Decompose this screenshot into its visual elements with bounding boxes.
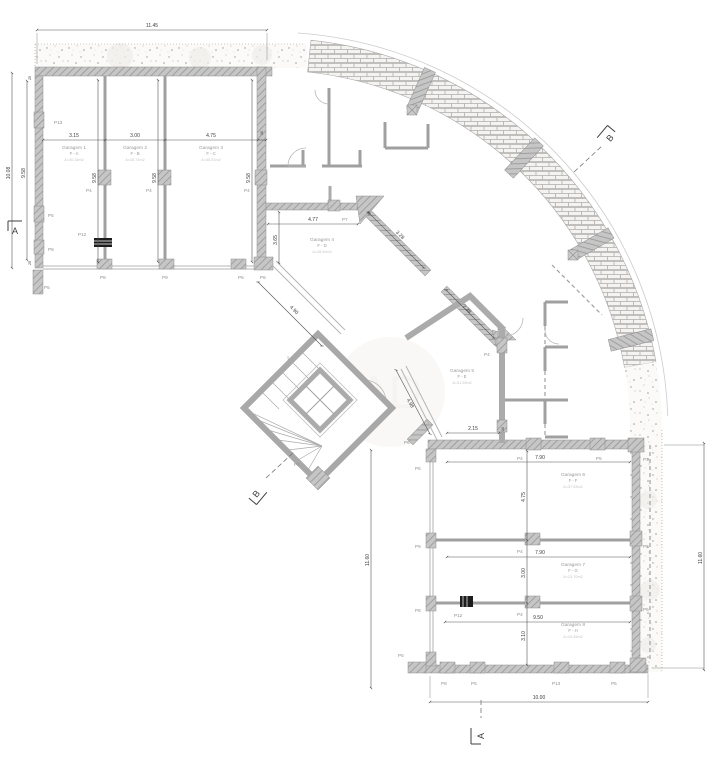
left-wing-corner-block [254, 257, 273, 270]
garage-label-6: Garagem 6 F - F A=37.53m2 [561, 472, 585, 489]
column-label: P5 [643, 544, 649, 549]
left-wing-left-wall [35, 76, 43, 268]
dim-g4-h: 3.65 [273, 235, 279, 245]
svg-text:A: A [12, 226, 18, 236]
column-label: P6 [404, 440, 410, 445]
section-marker-a-left: A [8, 221, 22, 236]
garage-label-7: Garagem 7 F - G A=23.70m2 [561, 562, 585, 579]
svg-text:A=30.18m2: A=30.18m2 [64, 158, 84, 162]
garage-label-4: Garagem 4 F - D A=28.40m2 [310, 237, 334, 254]
dim-g8-h: 3.10 [521, 631, 527, 641]
column-label: P3 [643, 457, 649, 462]
left-wing-top-wall [35, 67, 272, 76]
dim-g6-h: 4.75 [521, 492, 527, 502]
garage-label-5: Garagem 5 F - E A=31.25m2 [450, 368, 474, 385]
column-label: P13 [54, 120, 63, 125]
dim-right-height: 11.60 [698, 552, 704, 564]
svg-text:F - H: F - H [568, 628, 577, 633]
arc-end-stipple [625, 362, 663, 430]
column-label: P4 [244, 188, 250, 193]
column-label: P5 [398, 653, 404, 658]
column-label: P8 [415, 608, 421, 613]
column-label: P5 [611, 681, 617, 686]
column-label: P6 [643, 607, 649, 612]
column-label: P6 [260, 275, 266, 280]
svg-text:F - G: F - G [568, 568, 578, 573]
svg-text:B: B [251, 488, 263, 499]
panel-left [94, 238, 112, 247]
column-label: P8 [441, 681, 447, 686]
dim-rw-entry: 2.15 [468, 426, 478, 432]
section-b-bottom-dash [266, 452, 294, 478]
dim-g3-w: 4.75 [206, 133, 216, 139]
dim-g3-end: 30 [260, 131, 264, 135]
column-label: P12 [454, 613, 463, 618]
section-marker-a-bottom: A [471, 728, 486, 744]
column-label: P8 [100, 275, 106, 280]
svg-text:F - E: F - E [457, 374, 466, 379]
dim-rw-entry-small: 30 [501, 427, 505, 431]
garage-front-lines [43, 261, 442, 665]
dim-wall25-bottom: 25 [28, 261, 32, 265]
dim-g4-w: 4.77 [308, 217, 318, 223]
svg-text:F - C: F - C [206, 151, 215, 156]
svg-text:A=45.51m2: A=45.51m2 [201, 158, 221, 162]
dim-left-inner: 9.58 [21, 168, 27, 178]
dim-g7-h: 3.00 [521, 568, 527, 578]
column-label: P5 [471, 681, 477, 686]
garage-separators [105, 76, 632, 603]
dim-g2-w: 3.00 [130, 133, 140, 139]
panel-right [460, 596, 473, 607]
dim-mid-height: 11.60 [365, 554, 371, 566]
column-label: P6 [238, 275, 244, 280]
dim-top-width: 11.45 [146, 23, 158, 29]
svg-text:A: A [476, 733, 486, 739]
garage-label-1: Garagem 1 F - A A=30.18m2 [62, 145, 86, 162]
svg-text:F - A: F - A [70, 151, 79, 156]
dim-g1-h: 9.58 [92, 173, 98, 183]
column-label: P4 [517, 612, 523, 617]
column-label: P2 [294, 462, 300, 467]
svg-text:A=29.45m2: A=29.45m2 [563, 635, 583, 639]
column-label: P7 [342, 217, 348, 222]
floor-plan-svg: AD [0, 0, 712, 771]
dim-g1-w: 3.15 [69, 133, 79, 139]
column-label: P9 [162, 275, 168, 280]
column-label: P9 [415, 544, 421, 549]
svg-text:A=28.40m2: A=28.40m2 [312, 250, 332, 254]
dim-g3-h: 9.58 [246, 173, 252, 183]
garage-label-3: Garagem 3 F - C A=45.51m2 [199, 145, 223, 162]
column-label: P6 [415, 466, 421, 471]
garage-label-2: Garagem 2 F - B A=28.74m2 [123, 145, 147, 162]
svg-text:A=23.70m2: A=23.70m2 [563, 575, 583, 579]
column-label: P5 [596, 456, 602, 461]
garage4-top-wall [266, 203, 358, 210]
column-label: P4 [517, 456, 523, 461]
dim-g8-w: 9.50 [533, 615, 543, 621]
dim-g7-w: 7.90 [535, 550, 545, 556]
section-marker-b-top: B [597, 125, 619, 147]
column-label: P5 [44, 285, 50, 290]
right-wing-right-wall [632, 449, 640, 672]
floor-plan-page: AD [0, 0, 712, 771]
column-label: P5 [48, 213, 54, 218]
dim-wall25-top: 25 [28, 76, 32, 80]
column-label: P13 [552, 681, 561, 686]
section-marker-b-bottom: B [247, 485, 266, 505]
dim-bottom-width: 10.00 [533, 695, 546, 701]
column-label: P4 [146, 188, 152, 193]
section-b-top-dash [574, 146, 602, 172]
dim-left-outer: 10.08 [6, 167, 12, 180]
dim-g2-h: 9.58 [152, 173, 158, 183]
column-label: P12 [78, 232, 87, 237]
svg-text:A=31.25m2: A=31.25m2 [452, 381, 472, 385]
column-label: P4 [517, 549, 523, 554]
dim-g4-front: 4.90 [288, 305, 299, 316]
garage-label-8: Garagem 8 F - H A=29.45m2 [561, 622, 585, 639]
svg-text:A=37.53m2: A=37.53m2 [563, 485, 583, 489]
door-arc-cluster [545, 330, 559, 344]
svg-text:F - F: F - F [569, 478, 578, 483]
svg-text:F - B: F - B [130, 151, 139, 156]
dim-g6-w: 7.90 [535, 455, 545, 461]
column-label: P4 [86, 188, 92, 193]
door-arc-room-top [315, 90, 329, 104]
svg-text:A=28.74m2: A=28.74m2 [125, 158, 145, 162]
svg-text:F - D: F - D [317, 243, 326, 248]
column-label: P8 [48, 247, 54, 252]
column-label: P4 [484, 352, 490, 357]
core-vertical-wall [257, 67, 266, 268]
svg-text:B: B [604, 132, 616, 143]
